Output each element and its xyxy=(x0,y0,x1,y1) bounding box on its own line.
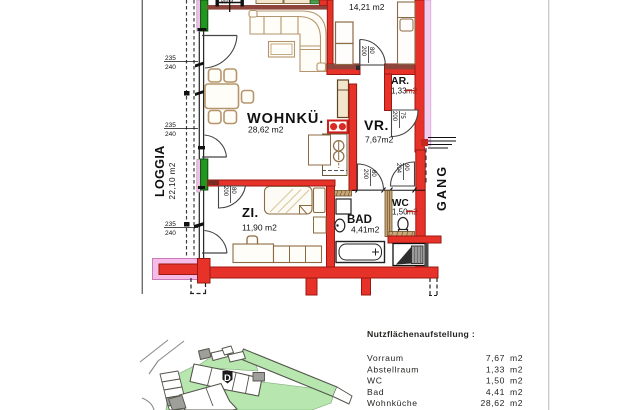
svg-text:7,67m2: 7,67m2 xyxy=(365,135,394,145)
svg-text:Abstellraum: Abstellraum xyxy=(367,364,419,374)
svg-text:200: 200 xyxy=(360,46,366,57)
svg-text:m2: m2 xyxy=(510,398,523,408)
svg-text:m2: m2 xyxy=(510,364,523,374)
svg-text:4,41: 4,41 xyxy=(486,387,505,397)
svg-text:LOGGIA: LOGGIA xyxy=(153,145,167,197)
svg-text:22,10 m2: 22,10 m2 xyxy=(168,162,177,199)
svg-text:80/14: 80/14 xyxy=(221,0,234,6)
svg-text:1,33: 1,33 xyxy=(486,364,505,374)
svg-text:Vorraum: Vorraum xyxy=(367,353,404,363)
svg-text:80: 80 xyxy=(368,47,374,54)
svg-text:m2: m2 xyxy=(510,387,523,397)
svg-text:80: 80 xyxy=(370,170,376,177)
svg-text:ZI.: ZI. xyxy=(242,205,259,220)
svg-text:D: D xyxy=(224,373,231,384)
svg-text:235: 235 xyxy=(165,122,176,129)
svg-text:80: 80 xyxy=(230,187,236,194)
svg-text:WC: WC xyxy=(367,376,383,386)
svg-text:m2: m2 xyxy=(510,353,523,363)
svg-text:14,21 m2: 14,21 m2 xyxy=(349,2,385,12)
svg-text:200: 200 xyxy=(362,169,368,180)
svg-text:28,62: 28,62 xyxy=(480,398,505,408)
svg-text:AR.: AR. xyxy=(391,75,409,87)
svg-text:4,41m2: 4,41m2 xyxy=(351,225,380,235)
svg-text:75: 75 xyxy=(399,112,405,119)
svg-text:240: 240 xyxy=(165,131,176,138)
svg-text:240: 240 xyxy=(165,64,176,71)
svg-text:1,50: 1,50 xyxy=(486,376,505,386)
svg-text:Wohnküche: Wohnküche xyxy=(367,398,418,408)
svg-text:Bad: Bad xyxy=(367,387,384,397)
svg-text:11,90 m2: 11,90 m2 xyxy=(242,223,277,233)
svg-text:200: 200 xyxy=(391,111,397,122)
svg-text:m2: m2 xyxy=(510,376,523,386)
svg-text:7,67: 7,67 xyxy=(486,353,505,363)
svg-text:Nutzflächenaufstellung :: Nutzflächenaufstellung : xyxy=(367,329,475,339)
svg-text:204: 204 xyxy=(395,163,401,174)
svg-text:200: 200 xyxy=(222,186,228,197)
svg-text:90: 90 xyxy=(403,164,409,171)
svg-text:1,33: 1,33 xyxy=(391,87,407,96)
svg-text:240: 240 xyxy=(165,230,176,237)
svg-text:235: 235 xyxy=(165,221,176,228)
svg-text:235: 235 xyxy=(165,55,176,62)
svg-text:28,62 m2: 28,62 m2 xyxy=(248,125,284,135)
svg-text:GANG: GANG xyxy=(435,165,449,211)
svg-text:VR.: VR. xyxy=(364,117,389,133)
